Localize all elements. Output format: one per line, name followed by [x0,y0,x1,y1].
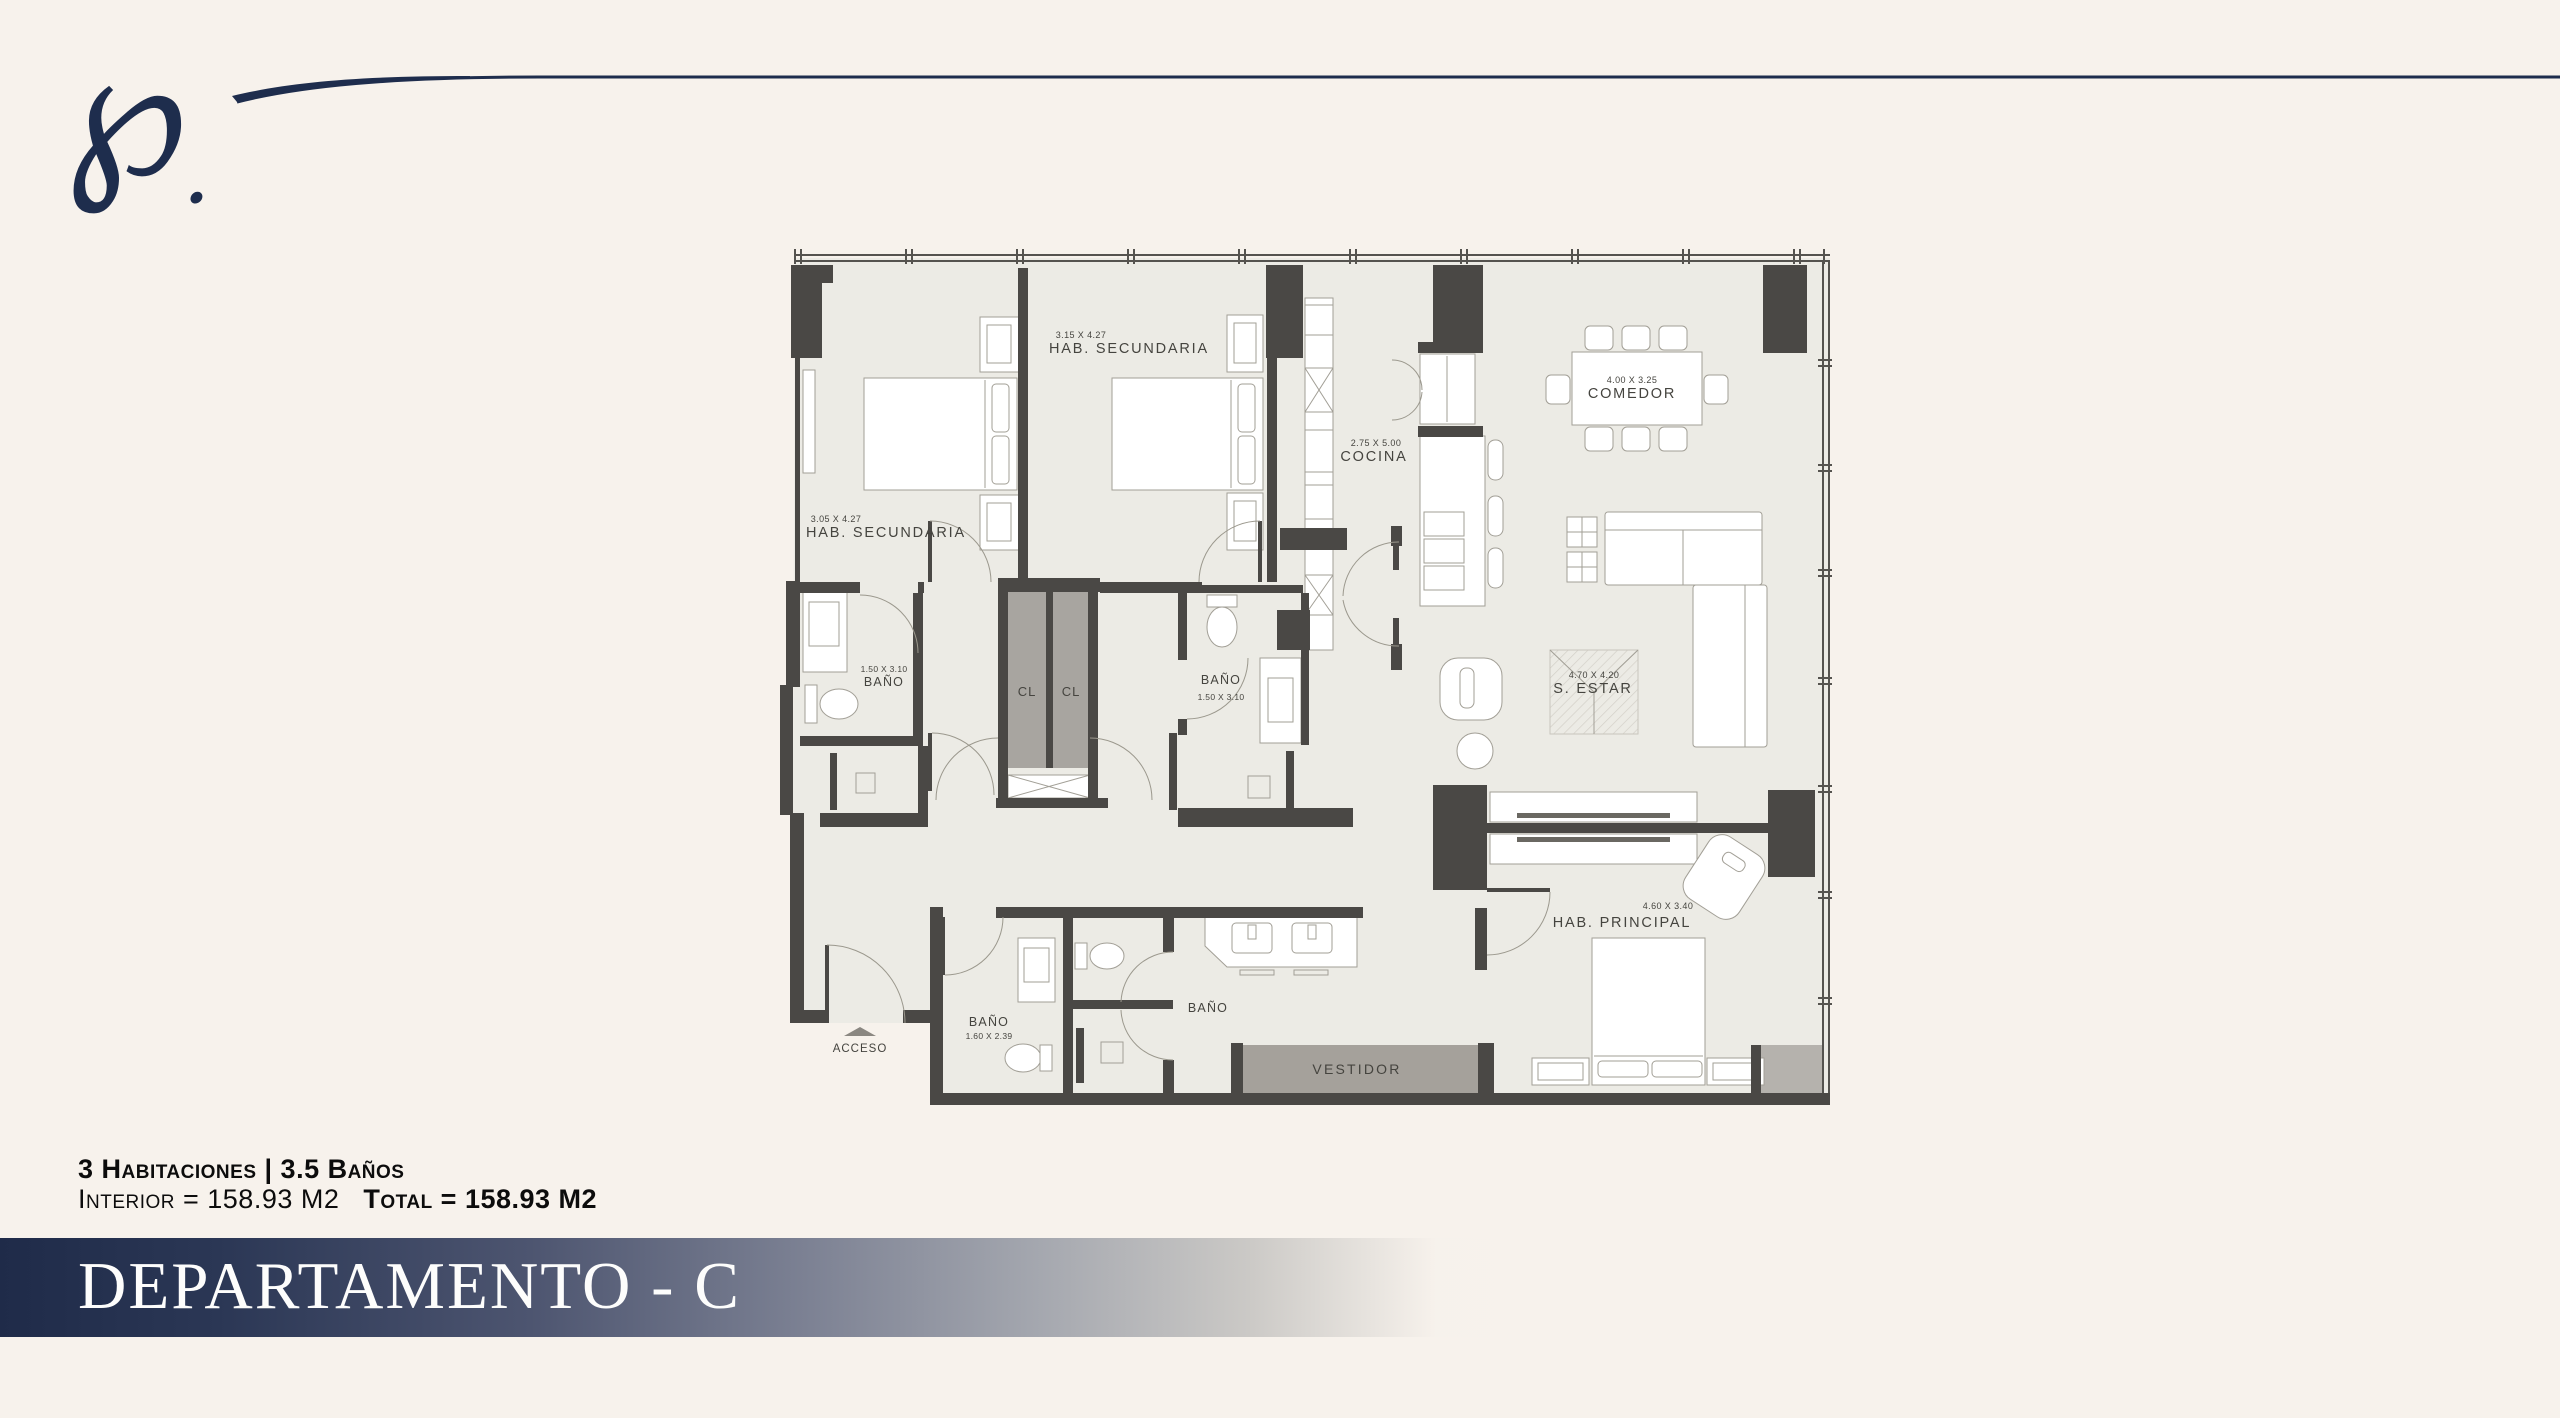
acceso-arrow-icon [844,1027,876,1036]
room-label-bano-1-dims: 1.50 X 3.10 [861,664,908,674]
title-bar: DEPARTAMENTO - C [0,1238,1560,1337]
room-label-hab-secundaria-2-dims: 3.15 X 4.27 [1056,330,1106,340]
page: { "colors": { "background": "#f7f2ec", "… [0,0,2560,1418]
room-label-s-estar: S. ESTAR [1553,681,1632,697]
room-label-bano-3-dims: 1.60 X 2.39 [966,1031,1013,1041]
unit-stats: 3 Habitaciones | 3.5 Baños Interior = 15… [78,1154,597,1214]
logo-script-icon: ℘ [64,28,188,198]
stats-areas: Interior = 158.93 M2Total = 158.93 M2 [78,1184,597,1214]
room-label-comedor-dims: 4.00 X 3.25 [1607,375,1657,385]
room-label-vestidor: VESTIDOR [1312,1061,1401,1077]
header-flourish-line [0,0,2560,200]
room-label-cl-2: CL [1062,684,1081,699]
room-label-bano-1: BAÑO [864,675,904,689]
room-label-hab-secundaria-2: HAB. SECUNDARIA [1049,341,1209,357]
room-label-comedor: COMEDOR [1588,386,1676,402]
room-label-cocina: COCINA [1340,449,1407,465]
room-label-acceso: ACCESO [833,1043,888,1055]
stats-total-area: Total = 158.93 M2 [363,1184,597,1214]
logo: ℘. [64,28,264,218]
page-title: DEPARTAMENTO - C [0,1238,1560,1335]
room-label-hab-principal: HAB. PRINCIPAL [1553,915,1692,931]
stats-interior-area: Interior = 158.93 M2 [78,1184,339,1214]
room-label-hab-principal-dims: 4.60 X 3.40 [1643,901,1693,911]
room-label-hab-secundaria-1: HAB. SECUNDARIA [806,525,966,541]
room-label-cl-1: CL [1018,684,1037,699]
room-label-bano-2: BAÑO [1201,673,1241,687]
room-label-s-estar-dims: 4.70 X 4.20 [1569,670,1619,680]
room-label-bano-2-dims: 1.50 X 3.10 [1198,692,1245,702]
logo-dot: . [182,142,211,202]
floor-plan: 3.05 X 4.27 HAB. SECUNDARIA 3.15 X 4.27 … [780,230,1850,1130]
room-label-hab-secundaria-1-dims: 3.05 X 4.27 [811,514,861,524]
room-label-cocina-dims: 2.75 X 5.00 [1351,438,1401,448]
room-label-bano-4: BAÑO [1188,1001,1228,1015]
stats-rooms-baths: 3 Habitaciones | 3.5 Baños [78,1154,597,1184]
room-label-bano-3: BAÑO [969,1015,1009,1029]
